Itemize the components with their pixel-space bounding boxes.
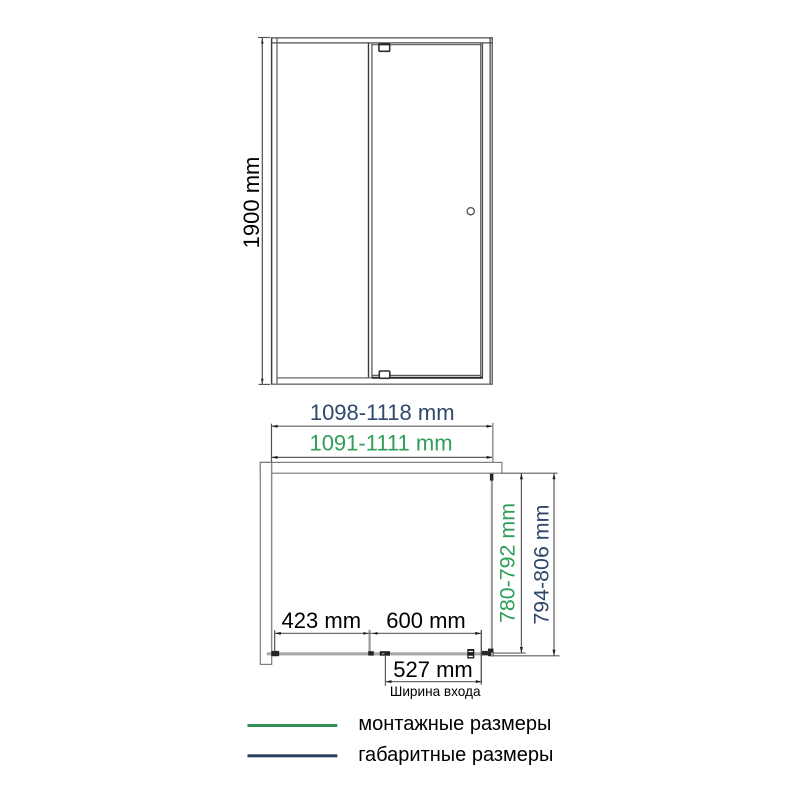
svg-text:600 mm: 600 mm: [386, 608, 465, 633]
svg-text:527 mm: 527 mm: [393, 657, 472, 682]
svg-text:794-806 mm: 794-806 mm: [530, 505, 554, 625]
svg-text:Ширина входа: Ширина входа: [390, 684, 481, 699]
svg-text:габаритные размеры: габаритные размеры: [358, 744, 553, 766]
svg-text:780-792 mm: 780-792 mm: [496, 503, 520, 623]
svg-text:423 mm: 423 mm: [282, 608, 361, 633]
svg-text:1900 mm: 1900 mm: [239, 157, 264, 249]
svg-text:1091-1111 mm: 1091-1111 mm: [309, 431, 452, 456]
svg-text:монтажные размеры: монтажные размеры: [358, 713, 551, 735]
svg-text:1098-1118 mm: 1098-1118 mm: [310, 400, 455, 425]
